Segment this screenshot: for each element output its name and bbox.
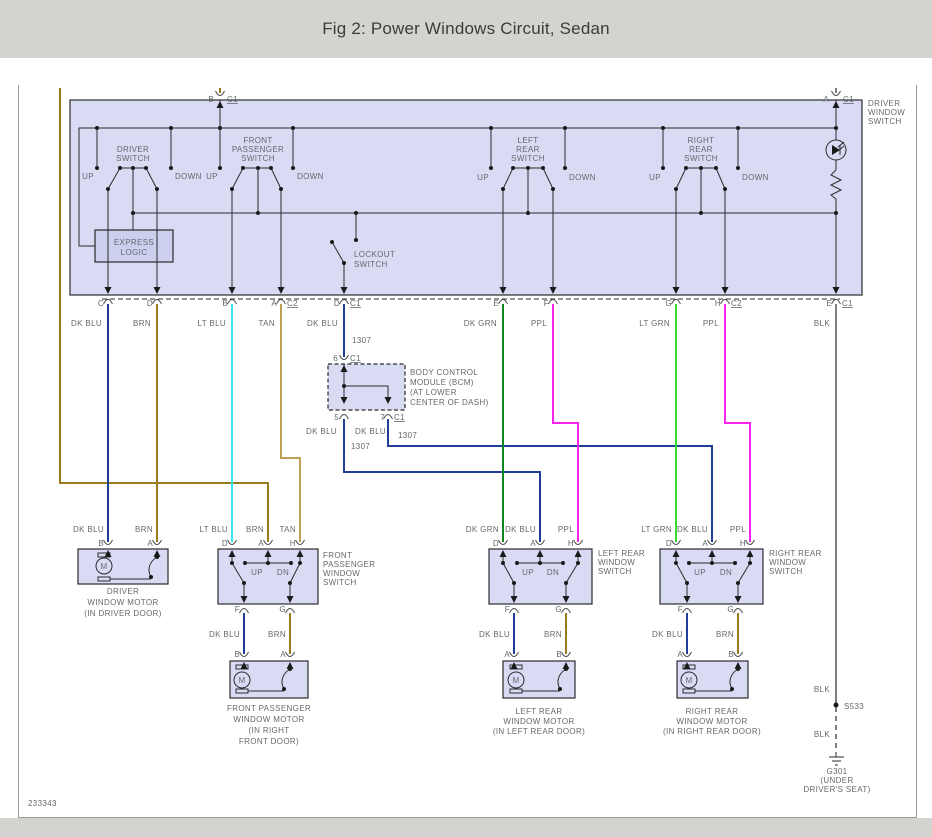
wire-color-label: BRN	[135, 525, 153, 534]
motor-symbol-letter: M	[238, 676, 245, 685]
driver-window-switch-box	[70, 100, 862, 295]
wire-color-label: LT BLU	[198, 319, 226, 328]
up-label: UP	[82, 172, 94, 181]
connector-label: C2	[287, 299, 298, 308]
wire-color-label: BRN	[133, 319, 151, 328]
wire-color-label: BRN	[544, 630, 562, 639]
front-passenger-window-switch-name: PASSENGER	[323, 560, 375, 569]
left-rear-switch-name: REAR	[516, 145, 540, 154]
pin-label: 7	[380, 413, 385, 422]
drawing-number: 233343	[28, 799, 57, 808]
pin-label: B	[556, 650, 562, 659]
pin-label: H	[715, 299, 721, 308]
wire-color-label: DK BLU	[355, 427, 386, 436]
right-rear-window-switch-name: WINDOW	[769, 558, 806, 567]
front-passenger-window-switch-name: FRONT	[323, 551, 352, 560]
wire-color-label: DK GRN	[466, 525, 499, 534]
right-rear-switch-name: SWITCH	[684, 154, 718, 163]
driver-window-switch-name: DRIVER	[868, 99, 900, 108]
pin-label: F	[235, 605, 240, 614]
wire-color-label: DK BLU	[73, 525, 104, 534]
pin-label: A	[258, 539, 264, 548]
wire-color-label: LT GRN	[641, 525, 672, 534]
driver-window-motor-location: (IN DRIVER DOOR)	[84, 609, 162, 618]
pin-label: H	[740, 539, 746, 548]
pin-label: A	[823, 95, 829, 104]
pin-label: A	[280, 650, 286, 659]
wire-color-label: TAN	[280, 525, 296, 534]
right-rear-switch-name: REAR	[689, 145, 713, 154]
pin-label: B	[98, 539, 104, 548]
pin-label: 6	[333, 354, 338, 363]
ground-location: (UNDER	[820, 776, 853, 785]
pin-label: F	[678, 605, 683, 614]
wire-color-label: DK BLU	[71, 319, 102, 328]
up-label: UP	[206, 172, 218, 181]
down-label: DOWN	[742, 173, 769, 182]
pin-label: G	[727, 605, 734, 614]
connector-label: C1	[842, 299, 853, 308]
front-passenger-window-motor-location: FRONT DOOR)	[239, 737, 299, 746]
front-passenger-window-motor-name: FRONT PASSENGER	[227, 704, 311, 713]
pin-label: D	[493, 539, 499, 548]
left-rear-window-switch-name: LEFT REAR	[598, 549, 645, 558]
right-rear-window-motor-name: WINDOW MOTOR	[676, 717, 747, 726]
pin-label: C	[98, 299, 104, 308]
wire-color-label: PPL	[558, 525, 574, 534]
connector-label: C1	[227, 95, 238, 104]
front-passenger-window-switch-name: WINDOW	[323, 569, 360, 578]
pin-label: B	[728, 650, 734, 659]
pin-label: G	[665, 299, 672, 308]
bcm-location: (AT LOWER	[410, 388, 457, 397]
connector-label: C1	[350, 299, 361, 308]
pin-label: 5	[334, 413, 339, 422]
left-rear-window-motor-name: LEFT REAR	[515, 707, 562, 716]
motor-symbol-letter: M	[100, 562, 107, 571]
wire-color-label: DK BLU	[652, 630, 683, 639]
up-label: UP	[694, 568, 706, 577]
splice-label: S533	[844, 702, 864, 711]
circuit-number: 1307	[351, 442, 370, 451]
down-label: DOWN	[297, 172, 324, 181]
driver-switch-name: DRIVER	[117, 145, 149, 154]
splice-dot-s533	[834, 703, 839, 708]
pin-label: E	[493, 299, 499, 308]
lockout-switch-name: SWITCH	[354, 260, 388, 269]
motor-symbol-letter: M	[512, 676, 519, 685]
wire-color-label: BRN	[268, 630, 286, 639]
up-label: UP	[649, 173, 661, 182]
pin-label: F	[544, 299, 549, 308]
left-rear-switch-name: LEFT	[518, 136, 539, 145]
ground-label: G301	[827, 767, 848, 776]
front-passenger-window-switch-name: SWITCH	[323, 578, 357, 587]
wire-color-label: BLK	[814, 730, 830, 739]
connector-label: C2	[731, 299, 742, 308]
wire-color-label: BLK	[814, 685, 830, 694]
wire-color-label: BRN	[246, 525, 264, 534]
pin-label: A	[271, 299, 277, 308]
wire-color-label: DK BLU	[209, 630, 240, 639]
pin-label: B	[234, 650, 240, 659]
wire-color-label: DK BLU	[306, 427, 337, 436]
front-passenger-switch-name: SWITCH	[241, 154, 275, 163]
down-label: DOWN	[569, 173, 596, 182]
wire-color-label: PPL	[730, 525, 746, 534]
driver-window-motor-name: WINDOW MOTOR	[87, 598, 158, 607]
down-label: DN	[720, 568, 732, 577]
right-rear-window-motor-name: RIGHT REAR	[686, 707, 739, 716]
wire-color-label: PPL	[703, 319, 719, 328]
connector-label: C1	[843, 95, 854, 104]
pin-label: D	[222, 539, 228, 548]
wire-color-label: BLK	[814, 319, 830, 328]
pin-label: B	[222, 299, 228, 308]
wire-color-label: DK BLU	[479, 630, 510, 639]
wire-color-label: TAN	[259, 319, 275, 328]
circuit-number: 1307	[352, 336, 371, 345]
driver-window-switch-name: SWITCH	[868, 117, 902, 126]
wiring-diagram: BC1AC1DRIVERSWITCHFRONTPASSENGERSWITCHLE…	[0, 0, 932, 837]
right-rear-window-switch-name: RIGHT REAR	[769, 549, 822, 558]
front-passenger-switch-name: FRONT	[243, 136, 272, 145]
pin-label: A	[702, 539, 708, 548]
wire-color-label: LT BLU	[200, 525, 228, 534]
pin-label: A	[147, 539, 153, 548]
lockout-switch-name: LOCKOUT	[354, 250, 395, 259]
left-rear-switch-name: SWITCH	[511, 154, 545, 163]
wire-color-label: DK GRN	[464, 319, 497, 328]
front-passenger-window-motor-location: (IN RIGHT	[249, 726, 290, 735]
driver-window-motor-name: DRIVER	[107, 587, 139, 596]
up-label: UP	[477, 173, 489, 182]
body-control-module-box	[328, 364, 405, 410]
driver-window-switch-name: WINDOW	[868, 108, 905, 117]
pin-label: G	[555, 605, 562, 614]
pin-label: E	[826, 299, 832, 308]
motor-symbol-letter: M	[685, 676, 692, 685]
left-rear-window-switch-name: SWITCH	[598, 567, 632, 576]
wire-color-label: PPL	[531, 319, 547, 328]
driver-switch-name: SWITCH	[116, 154, 150, 163]
pin-label: A	[504, 650, 510, 659]
bcm-name: BODY CONTROL	[410, 368, 478, 377]
pin-label: G	[279, 605, 286, 614]
down-label: DOWN	[175, 172, 202, 181]
left-rear-window-motor-location: (IN LEFT REAR DOOR)	[493, 727, 585, 736]
pin-label: D	[147, 299, 153, 308]
connector-label: C1	[394, 413, 405, 422]
wire-color-label: DK BLU	[677, 525, 708, 534]
wire-color-label: DK BLU	[307, 319, 338, 328]
pin-label: D	[666, 539, 672, 548]
circuit-number: 1307	[398, 431, 417, 440]
express-logic-name: EXPRESS	[114, 238, 154, 247]
express-logic-name: LOGIC	[121, 248, 148, 257]
pin-label: H	[568, 539, 574, 548]
front-passenger-window-motor-name: WINDOW MOTOR	[233, 715, 304, 724]
pin-label: H	[290, 539, 296, 548]
up-label: UP	[251, 568, 263, 577]
bcm-name: MODULE (BCM)	[410, 378, 474, 387]
wire-color-label: LT GRN	[639, 319, 670, 328]
left-rear-window-motor-name: WINDOW MOTOR	[503, 717, 574, 726]
right-rear-window-motor-location: (IN RIGHT REAR DOOR)	[663, 727, 761, 736]
pin-label: F	[505, 605, 510, 614]
pin-label: D	[334, 299, 340, 308]
wire-color-label: DK BLU	[505, 525, 536, 534]
pin-label: B	[208, 95, 214, 104]
connector-label: C1	[350, 354, 361, 363]
right-rear-switch-name: RIGHT	[688, 136, 715, 145]
pin-label: A	[677, 650, 683, 659]
wire-color-label: BRN	[716, 630, 734, 639]
ground-location: DRIVER'S SEAT)	[803, 785, 870, 794]
bcm-location: CENTER OF DASH)	[410, 398, 489, 407]
left-rear-window-switch-name: WINDOW	[598, 558, 635, 567]
down-label: DN	[277, 568, 289, 577]
pin-label: A	[530, 539, 536, 548]
front-passenger-switch-name: PASSENGER	[232, 145, 284, 154]
up-label: UP	[522, 568, 534, 577]
down-label: DN	[547, 568, 559, 577]
right-rear-window-switch-name: SWITCH	[769, 567, 803, 576]
